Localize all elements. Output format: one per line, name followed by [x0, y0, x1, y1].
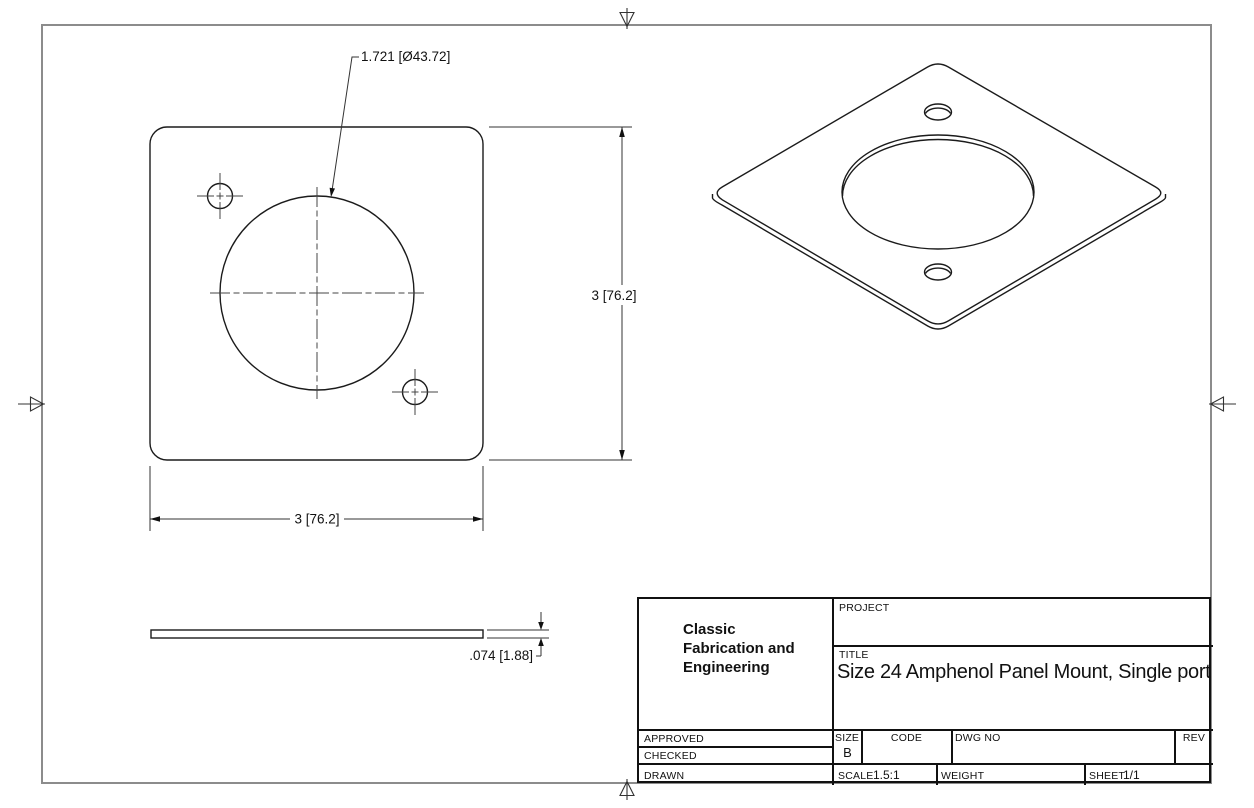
dimension-hole-diameter: 1.721 [Ø43.72] [330, 49, 451, 197]
tb-divider-weight-sheet [1084, 764, 1086, 785]
weight-label: WEIGHT [941, 770, 984, 782]
checked-label: CHECKED [644, 750, 697, 762]
center-mark-left-icon [18, 397, 45, 411]
plate-edge-outline [151, 630, 483, 638]
dwg-no-label: DWG NO [955, 732, 1001, 744]
project-label: PROJECT [839, 602, 889, 614]
drawing-sheet: 1.721 [Ø43.72] 3 [76.2] 3 [76.2] [0, 0, 1254, 808]
company-name-line3: Engineering [683, 658, 795, 677]
company-name-line2: Fabrication and [683, 639, 795, 658]
dimension-thickness-label: .074 [1.88] [469, 648, 533, 663]
dimension-height-label: 3 [76.2] [591, 288, 636, 303]
iso-mounting-hole-top [925, 104, 952, 120]
tb-divider-row2-top [639, 729, 1213, 731]
drawn-label: DRAWN [644, 770, 684, 782]
tb-divider-scale-weight [936, 764, 938, 785]
sheet-label: SHEET [1089, 770, 1125, 782]
dimension-width-label: 3 [76.2] [294, 512, 339, 527]
code-label: CODE [861, 732, 952, 744]
dimension-width: 3 [76.2] [150, 466, 483, 531]
isometric-view [713, 64, 1166, 329]
scale-value: 1.5:1 [873, 768, 900, 782]
rev-label: REV [1175, 732, 1213, 744]
scale-label: SCALE [838, 770, 873, 782]
iso-mounting-hole-bottom [925, 264, 952, 280]
title-block: Classic Fabrication and Engineering PROJ… [637, 597, 1211, 783]
side-view [151, 630, 483, 638]
drawing-title: Size 24 Amphenol Panel Mount, Single por… [837, 661, 1211, 684]
approved-label: APPROVED [644, 733, 704, 745]
title-label: TITLE [839, 649, 869, 661]
tb-divider-row3-top [639, 763, 1213, 765]
iso-connector-hole [842, 135, 1034, 249]
dimension-height: 3 [76.2] [489, 127, 637, 460]
mounting-hole-bottom-right [392, 369, 438, 415]
tb-divider-approved-checked [639, 746, 833, 748]
company-name-line1: Classic [683, 620, 795, 639]
sheet-value: 1/1 [1123, 768, 1140, 782]
company-name: Classic Fabrication and Engineering [683, 620, 795, 677]
tb-divider-project-title [833, 645, 1213, 647]
mounting-hole-top-left [197, 173, 243, 219]
dimension-hole-diameter-label: 1.721 [Ø43.72] [361, 49, 450, 64]
size-value: B [833, 745, 862, 760]
front-view [150, 127, 483, 460]
size-label: SIZE [835, 732, 859, 744]
center-mark-right-icon [1209, 397, 1236, 411]
